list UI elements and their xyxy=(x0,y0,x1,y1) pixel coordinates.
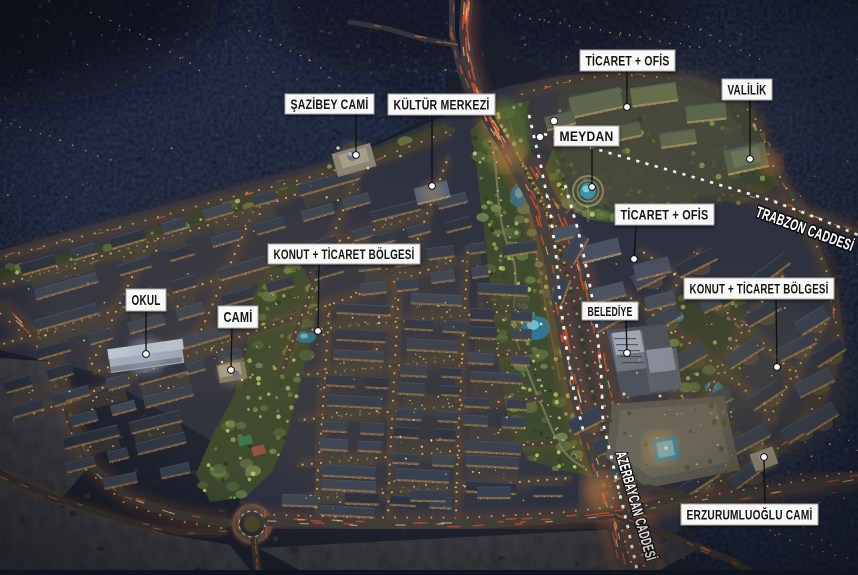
svg-text:KONUT + TİCARET BÖLGESİ: KONUT + TİCARET BÖLGESİ xyxy=(274,246,415,263)
svg-text:VALİLİK: VALİLİK xyxy=(728,82,767,99)
svg-text:BELEDİYE: BELEDİYE xyxy=(588,304,633,319)
svg-text:KÜLTÜR MERKEZİ: KÜLTÜR MERKEZİ xyxy=(394,97,490,114)
svg-text:CAMİ: CAMİ xyxy=(224,309,253,326)
svg-text:ŞAZİBEY CAMİ: ŞAZİBEY CAMİ xyxy=(291,96,369,113)
svg-text:ERZURUMLUOĞLU CAMİ: ERZURUMLUOĞLU CAMİ xyxy=(687,506,813,524)
svg-text:TİCARET + OFİS: TİCARET + OFİS xyxy=(621,207,709,224)
svg-text:MEYDAN: MEYDAN xyxy=(560,129,614,145)
svg-text:TİCARET + OFİS: TİCARET + OFİS xyxy=(586,53,670,70)
svg-text:OKUL: OKUL xyxy=(132,292,161,309)
svg-text:KONUT + TİCARET BÖLGESİ: KONUT + TİCARET BÖLGESİ xyxy=(690,281,829,298)
